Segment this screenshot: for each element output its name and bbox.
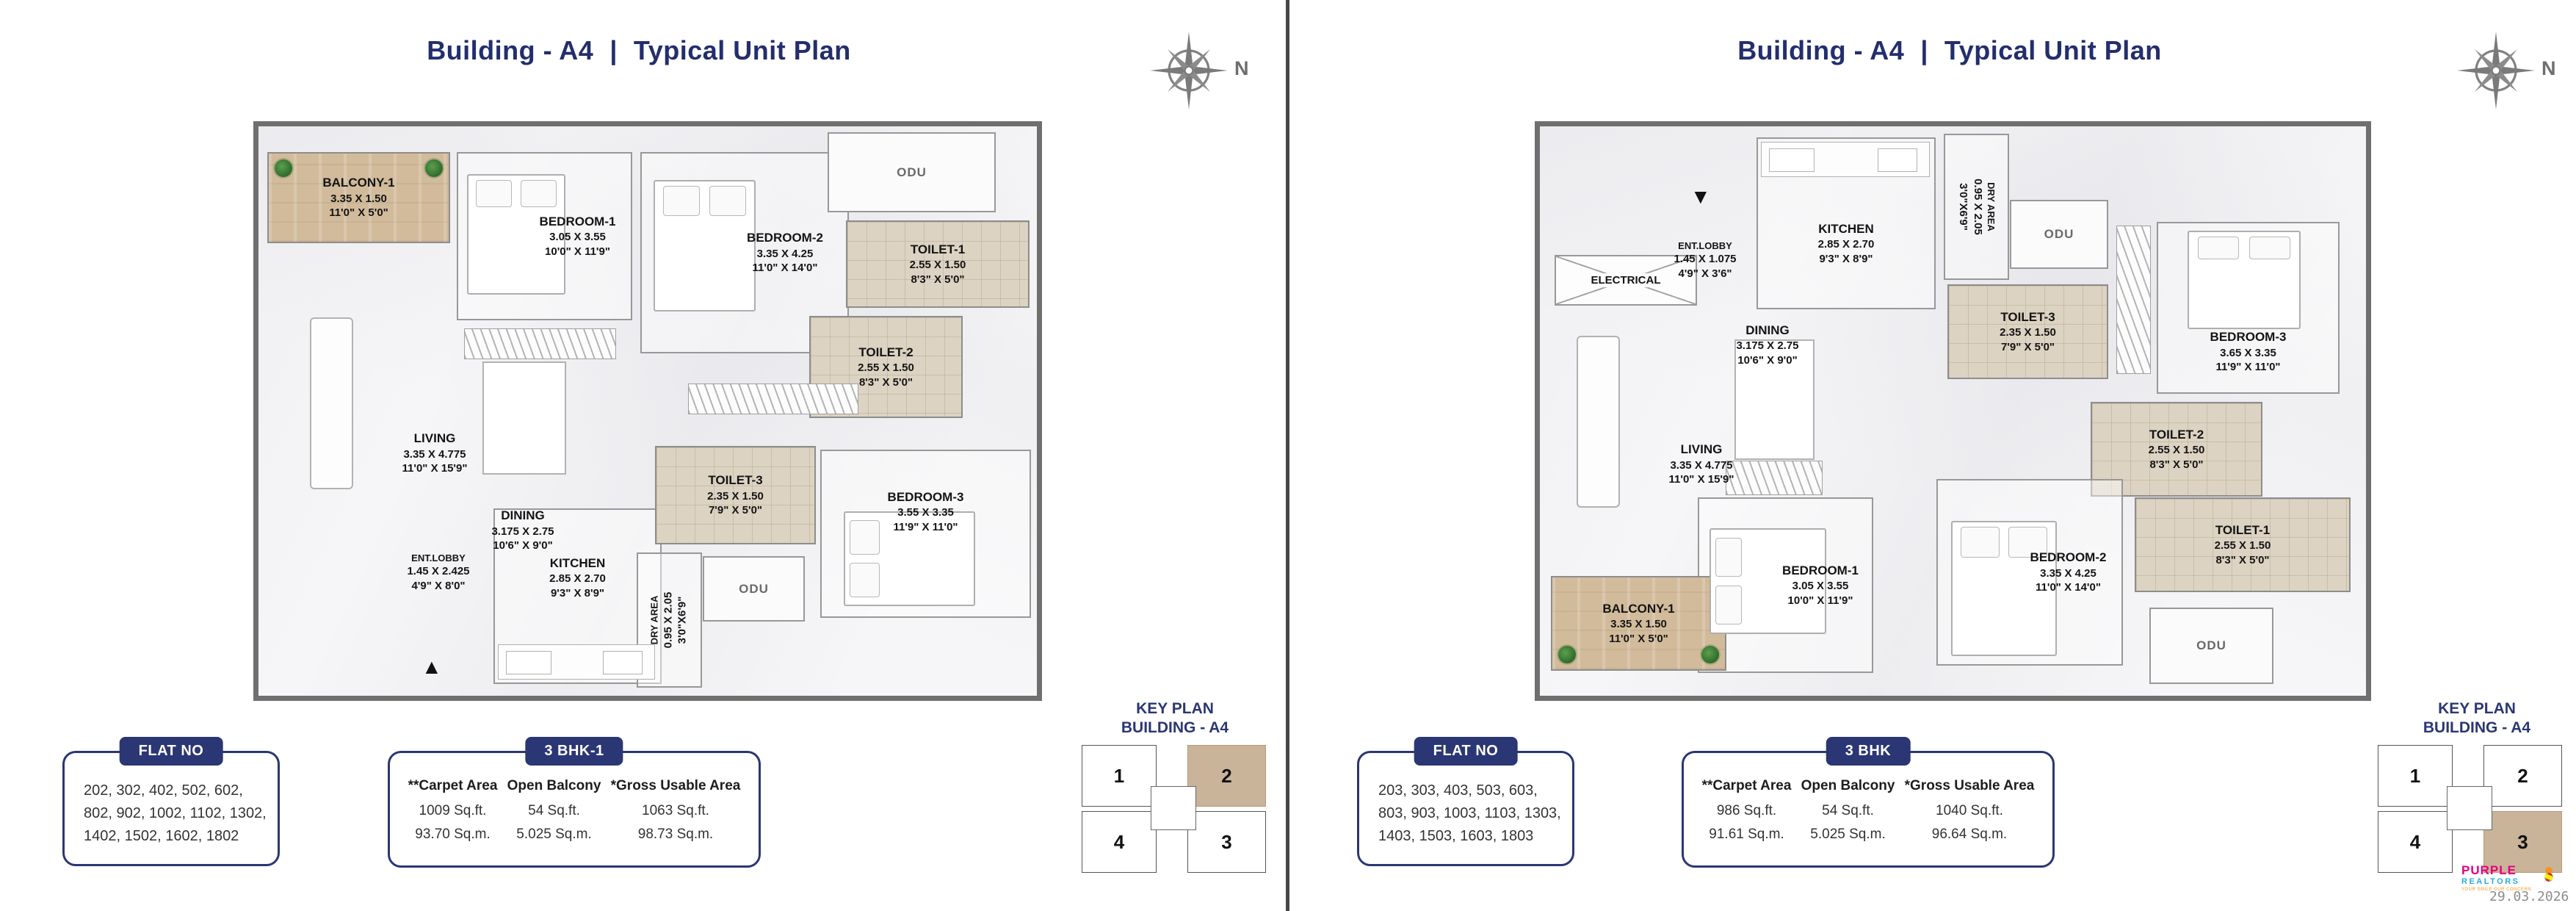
key-plan-unit-4: 4 bbox=[1082, 811, 1157, 873]
room-label: DRY AREA 0.95 X 2.05 3'0"X6'9" bbox=[1905, 176, 2048, 238]
sink-icon bbox=[1878, 148, 1917, 172]
compass-icon: N bbox=[2456, 31, 2574, 112]
room-name: TOILET-1 bbox=[911, 242, 965, 258]
room-name: TOILET-3 bbox=[708, 472, 762, 489]
room-dim-ft: 11'9" X 11'0" bbox=[893, 520, 958, 535]
entrance-arrow-icon: ▼ bbox=[1690, 187, 1711, 207]
room-dim-ft: 11'0" X 14'0" bbox=[753, 261, 818, 276]
room-name: TOILET-1 bbox=[2215, 522, 2270, 539]
panel-divider bbox=[1286, 0, 1289, 911]
area-sqft: 986 Sq.ft. bbox=[1702, 803, 1792, 819]
area-sqm: 96.64 Sq.m. bbox=[1905, 827, 2035, 843]
room-dim-ft: 9'3" X 8'9" bbox=[551, 586, 604, 601]
room-dim-m: 3.35 X 4.775 bbox=[1670, 458, 1732, 473]
room-dim-ft: 11'9" X 11'0" bbox=[2215, 360, 2280, 375]
room-toilet-1: TOILET-1 2.55 X 1.50 8'3" X 5'0" bbox=[846, 220, 1030, 308]
odu-label: ODU bbox=[739, 582, 769, 597]
brand-name-top: PURPLE bbox=[2461, 864, 2517, 876]
flat-no-tab: FLAT NO bbox=[1414, 737, 1518, 766]
room-name: BALCONY-1 bbox=[322, 175, 394, 191]
wardrobe-hatch bbox=[464, 328, 616, 359]
room-name: LIVING bbox=[1681, 442, 1723, 458]
room-dim-m: 3.55 X 3.35 bbox=[897, 505, 954, 520]
room-name: BEDROOM-3 bbox=[2210, 329, 2287, 345]
room-dim-ft: 8'3" X 5'0" bbox=[911, 273, 964, 287]
area-column: Open Balcony 54 Sq.ft. 5.025 Sq.m. bbox=[1801, 778, 1895, 850]
unit-number: 3 bbox=[2517, 831, 2528, 854]
title-separator: | bbox=[1920, 35, 1928, 65]
wardrobe-hatch bbox=[2116, 226, 2151, 374]
room-toilet-3: TOILET-3 2.35 X 1.50 7'9" X 5'0" bbox=[1947, 284, 2108, 379]
stove-icon bbox=[506, 651, 551, 674]
unit-number: 4 bbox=[2410, 831, 2420, 854]
compass-north-label: N bbox=[1234, 57, 1249, 80]
room-label: BALCONY-1 3.35 X 1.50 11'0" X 5'0" bbox=[269, 154, 449, 242]
room-dim-ft: 8'3" X 5'0" bbox=[2149, 458, 2203, 472]
room-dim-m: 3.175 X 2.75 bbox=[1736, 339, 1798, 353]
room-label: TOILET-1 2.55 X 1.50 8'3" X 5'0" bbox=[847, 222, 1028, 306]
room-dim-ft: 9'3" X 8'9" bbox=[1819, 252, 1873, 267]
room-dim-ft: 11'0" X 15'9" bbox=[402, 461, 468, 476]
unit-number: 2 bbox=[2517, 765, 2528, 788]
room-label: BEDROOM-1 3.05 X 3.55 10'0" X 11'9" bbox=[1769, 499, 1872, 671]
key-plan-unit-1: 1 bbox=[1082, 745, 1157, 807]
key-plan-line1: KEY PLAN bbox=[1068, 699, 1281, 719]
area-header: Open Balcony bbox=[507, 778, 601, 794]
area-sqm: 5.025 Sq.m. bbox=[1801, 827, 1895, 843]
bhk-box-right: 3 BHK **Carpet Area 986 Sq.ft. 91.61 Sq.… bbox=[1682, 751, 2055, 868]
unit-number: 1 bbox=[1114, 765, 1124, 788]
room-label: BEDROOM-3 3.65 X 3.35 11'9" X 11'0" bbox=[2158, 312, 2338, 392]
key-plan-unit-3: 3 bbox=[1187, 811, 1266, 873]
floorplan-sheet: Building - A4|Typical Unit Plan N BALCON… bbox=[0, 0, 2576, 911]
area-column: Open Balcony 54 Sq.ft. 5.025 Sq.m. bbox=[507, 778, 601, 850]
room-toilet-3: TOILET-3 2.35 X 1.50 7'9" X 5'0" bbox=[655, 446, 816, 544]
odu-unit: ODU bbox=[828, 132, 996, 212]
room-dim-ft: 11'0" X 14'0" bbox=[2036, 580, 2101, 595]
room-dim-ft: 3'0"X6'9" bbox=[1956, 183, 1971, 231]
room-name: KITCHEN bbox=[550, 555, 606, 572]
building-name: Building - A4 bbox=[427, 35, 593, 65]
room-dim-ft: 4'9" X 8'0" bbox=[411, 579, 465, 594]
room-balcony-1: BALCONY-1 3.35 X 1.50 11'0" X 5'0" bbox=[1551, 576, 1726, 671]
page-title-left: Building - A4|Typical Unit Plan bbox=[316, 35, 962, 71]
room-label: BEDROOM-1 3.05 X 3.55 10'0" X 11'9" bbox=[524, 154, 631, 319]
room-label: BEDROOM-3 3.55 X 3.35 11'9" X 11'0" bbox=[822, 407, 1030, 616]
bhk-tab: 3 BHK-1 bbox=[525, 737, 623, 766]
room-dim-ft: 8'3" X 5'0" bbox=[859, 375, 913, 390]
area-column: **Carpet Area 1009 Sq.ft. 93.70 Sq.m. bbox=[408, 778, 498, 850]
key-plan-unit-1: 1 bbox=[2378, 745, 2453, 807]
page-title-right: Building - A4|Typical Unit Plan bbox=[1627, 35, 2273, 71]
room-toilet-2: TOILET-2 2.55 X 1.50 8'3" X 5'0" bbox=[809, 316, 963, 418]
room-dry-area: DRY AREA 0.95 X 2.05 3'0"X6'9" bbox=[1944, 134, 2009, 280]
room-label: BEDROOM-2 3.35 X 4.25 11'0" X 14'0" bbox=[2015, 480, 2121, 664]
room-dim-ft: 10'6" X 9'0" bbox=[1737, 353, 1797, 368]
room-name: TOILET-2 bbox=[858, 345, 913, 361]
key-plan-line2: BUILDING - A4 bbox=[1068, 719, 1281, 738]
odu-label: ODU bbox=[2196, 638, 2226, 653]
area-header: *Gross Usable Area bbox=[611, 778, 741, 794]
area-column: **Carpet Area 986 Sq.ft. 91.61 Sq.m. bbox=[1702, 778, 1792, 850]
room-dim-ft: 11'0" X 5'0" bbox=[329, 206, 388, 220]
compass-north-label: N bbox=[2541, 57, 2556, 80]
key-plan-unit-2-highlighted: 2 bbox=[1187, 745, 1266, 807]
room-name: ELECTRICAL bbox=[1588, 273, 1664, 288]
title-separator: | bbox=[609, 35, 618, 65]
area-column: *Gross Usable Area 1040 Sq.ft. 96.64 Sq.… bbox=[1905, 778, 2035, 850]
room-label: ENT.LOBBY 1.45 X 2.425 4'9" X 8'0" bbox=[391, 494, 486, 652]
key-plan-unit-4: 4 bbox=[2378, 811, 2453, 873]
area-sqft: 1063 Sq.ft. bbox=[611, 803, 741, 819]
compass-icon: N bbox=[1149, 31, 1267, 112]
room-name: DRY AREA bbox=[1985, 182, 1997, 231]
room-dim-m: 3.35 X 4.25 bbox=[2040, 566, 2096, 581]
room-name: TOILET-3 bbox=[2000, 309, 2055, 325]
key-plan-core bbox=[1151, 786, 1196, 830]
room-dim-ft: 11'0" X 15'9" bbox=[1669, 472, 1734, 487]
room-name: BEDROOM-2 bbox=[747, 230, 823, 246]
bhk-box-left: 3 BHK-1 **Carpet Area 1009 Sq.ft. 93.70 … bbox=[388, 751, 761, 868]
room-name: ENT.LOBBY bbox=[1678, 240, 1732, 253]
area-sqm: 91.61 Sq.m. bbox=[1702, 827, 1792, 843]
room-name: LIVING bbox=[414, 431, 456, 447]
room-dim-m: 3.35 X 4.775 bbox=[403, 447, 466, 462]
room-label: DRY AREA 0.95 X 2.05 3'0"X6'9" bbox=[604, 589, 736, 652]
room-dim-ft: 11'0" X 5'0" bbox=[1609, 632, 1668, 647]
floorplan-left: BALCONY-1 3.35 X 1.50 11'0" X 5'0" BEDRO… bbox=[253, 121, 1042, 701]
room-dim-m: 2.55 X 1.50 bbox=[910, 258, 966, 273]
area-column: *Gross Usable Area 1063 Sq.ft. 98.73 Sq.… bbox=[611, 778, 741, 850]
area-header: *Gross Usable Area bbox=[1905, 778, 2035, 794]
unit-number: 1 bbox=[2410, 765, 2420, 788]
key-plan-line1: KEY PLAN bbox=[2370, 699, 2576, 719]
room-dim-m: 1.45 X 1.075 bbox=[1674, 252, 1736, 267]
room-bedroom-3: BEDROOM-3 3.65 X 3.35 11'9" X 11'0" bbox=[2157, 222, 2340, 394]
room-name: KITCHEN bbox=[1818, 221, 1874, 237]
unit-number: 4 bbox=[1114, 831, 1124, 854]
room-name: DRY AREA bbox=[649, 596, 662, 645]
flat-no-box-left: FLAT NO 202, 302, 402, 502, 602, 802, 90… bbox=[62, 751, 280, 866]
plan-type: Typical Unit Plan bbox=[1944, 35, 2162, 65]
room-dim-ft: 10'0" X 11'9" bbox=[545, 245, 610, 259]
room-dim-m: 2.55 X 1.50 bbox=[2215, 539, 2271, 553]
room-dim-m: 2.85 X 2.70 bbox=[1818, 237, 1875, 252]
room-name: BEDROOM-1 bbox=[1782, 563, 1859, 579]
room-bedroom-3: BEDROOM-3 3.55 X 3.35 11'9" X 11'0" bbox=[820, 450, 1031, 618]
key-plan-title: KEY PLAN BUILDING - A4 bbox=[1068, 699, 1281, 738]
room-label: LIVING 3.35 X 4.775 11'0" X 15'9" bbox=[1621, 380, 1782, 549]
room-bedroom-2: BEDROOM-2 3.35 X 4.25 11'0" X 14'0" bbox=[1936, 479, 2123, 666]
room-dim-ft: 8'3" X 5'0" bbox=[2215, 553, 2269, 568]
room-dim-m: 3.35 X 4.25 bbox=[757, 247, 814, 262]
room-ent-lobby: ENT.LOBBY 1.45 X 2.425 4'9" X 8'0" bbox=[391, 494, 486, 652]
room-dim-m: 1.45 X 2.425 bbox=[407, 564, 469, 579]
area-sqm: 93.70 Sq.m. bbox=[408, 827, 498, 843]
room-name: BALCONY-1 bbox=[1602, 601, 1674, 617]
sofa-icon bbox=[1577, 336, 1620, 508]
area-header: Open Balcony bbox=[1801, 778, 1895, 794]
room-label: TOILET-2 2.55 X 1.50 8'3" X 5'0" bbox=[811, 317, 961, 417]
brand-text: PURPLE REALTORS YOUR SMILE OUR CONCERN bbox=[2461, 864, 2531, 892]
flat-no-box-right: FLAT NO 203, 303, 403, 503, 603, 803, 90… bbox=[1357, 751, 1574, 866]
key-plan-title: KEY PLAN BUILDING - A4 bbox=[2370, 699, 2576, 738]
room-toilet-1: TOILET-1 2.55 X 1.50 8'3" X 5'0" bbox=[2135, 497, 2351, 592]
room-name: TOILET-2 bbox=[2149, 427, 2204, 443]
room-dim-m: 3.05 X 3.55 bbox=[549, 230, 606, 245]
room-label: TOILET-1 2.55 X 1.50 8'3" X 5'0" bbox=[2136, 499, 2349, 591]
odu-label: ODU bbox=[897, 165, 927, 180]
area-sqm: 98.73 Sq.m. bbox=[611, 827, 741, 843]
key-plan-right: KEY PLAN BUILDING - A4 1 2 4 3 bbox=[2370, 699, 2576, 872]
area-sqm: 5.025 Sq.m. bbox=[507, 827, 601, 843]
brand-name-bottom: REALTORS bbox=[2461, 878, 2520, 886]
odu-unit: ODU bbox=[2149, 608, 2273, 684]
room-dim-m: 3.35 X 1.50 bbox=[330, 192, 387, 206]
flat-numbers: 203, 303, 403, 503, 603, 803, 903, 1003,… bbox=[1378, 779, 1562, 848]
area-sqft: 54 Sq.ft. bbox=[507, 803, 601, 819]
plan-type: Typical Unit Plan bbox=[634, 35, 851, 65]
stove-icon bbox=[1769, 148, 1815, 172]
room-dim-m: 0.95 X 2.05 bbox=[661, 592, 676, 649]
floorplan-right: ELECTRICAL ENT.LOBBY 1.45 X 1.075 4'9" X… bbox=[1535, 121, 2371, 701]
flat-no-tab: FLAT NO bbox=[120, 737, 223, 766]
flat-numbers: 202, 302, 402, 502, 602, 802, 902, 1002,… bbox=[84, 779, 267, 848]
room-dim-m: 2.35 X 1.50 bbox=[2000, 325, 2056, 340]
key-plan-line2: BUILDING - A4 bbox=[2370, 719, 2576, 738]
unit-number: 3 bbox=[1221, 831, 1231, 854]
room-dim-m: 3.35 X 1.50 bbox=[1610, 617, 1667, 632]
odu-label: ODU bbox=[2044, 227, 2074, 242]
key-plan-left: KEY PLAN BUILDING - A4 1 2 4 3 bbox=[1068, 699, 1281, 872]
room-dim-ft: 4'9" X 3'6" bbox=[1678, 267, 1732, 281]
room-dim-m: 0.95 X 2.05 bbox=[1970, 179, 1985, 235]
room-dim-m: 2.55 X 1.50 bbox=[858, 361, 914, 375]
room-label: BALCONY-1 3.35 X 1.50 11'0" X 5'0" bbox=[1552, 577, 1725, 669]
room-dim-m: 3.05 X 3.55 bbox=[1792, 579, 1849, 594]
sink-icon bbox=[603, 651, 643, 674]
room-dim-ft: 3'0"X6'9" bbox=[676, 597, 690, 644]
area-header: **Carpet Area bbox=[408, 778, 498, 794]
building-name: Building - A4 bbox=[1737, 35, 1904, 65]
unit-number: 2 bbox=[1221, 765, 1231, 788]
room-label: TOILET-3 2.35 X 1.50 7'9" X 5'0" bbox=[656, 447, 814, 543]
key-plan-unit-2: 2 bbox=[2483, 745, 2562, 807]
area-sqft: 1009 Sq.ft. bbox=[408, 803, 498, 819]
room-dim-ft: 7'9" X 5'0" bbox=[709, 503, 762, 518]
room-dim-ft: 7'9" X 5'0" bbox=[2001, 340, 2055, 355]
room-name: ENT.LOBBY bbox=[411, 552, 466, 565]
room-name: BEDROOM-3 bbox=[888, 489, 964, 505]
room-dim-m: 2.35 X 1.50 bbox=[707, 489, 764, 504]
room-balcony-1: BALCONY-1 3.35 X 1.50 11'0" X 5'0" bbox=[267, 152, 450, 243]
area-header: **Carpet Area bbox=[1702, 778, 1792, 794]
kitchen-counter bbox=[1761, 142, 1930, 177]
room-label: TOILET-3 2.35 X 1.50 7'9" X 5'0" bbox=[1949, 286, 2107, 378]
room-dim-m: 2.85 X 2.70 bbox=[549, 572, 606, 586]
bhk-tab: 3 BHK bbox=[1826, 737, 1911, 766]
key-plan-core bbox=[2447, 786, 2492, 830]
room-name: BEDROOM-1 bbox=[540, 214, 616, 230]
entrance-arrow-icon: ▲ bbox=[422, 657, 442, 677]
room-dim-m: 3.65 X 3.35 bbox=[2220, 346, 2276, 361]
room-dim-m: 2.55 X 1.50 bbox=[2149, 443, 2205, 458]
date-stamp: 29.03.2026 bbox=[2489, 889, 2569, 904]
room-name: BEDROOM-2 bbox=[2030, 550, 2107, 566]
room-dim-ft: 10'0" X 11'9" bbox=[1788, 594, 1853, 608]
room-name: DINING bbox=[1745, 323, 1790, 339]
area-sqft: 1040 Sq.ft. bbox=[1905, 803, 2035, 819]
area-sqft: 54 Sq.ft. bbox=[1801, 803, 1895, 819]
